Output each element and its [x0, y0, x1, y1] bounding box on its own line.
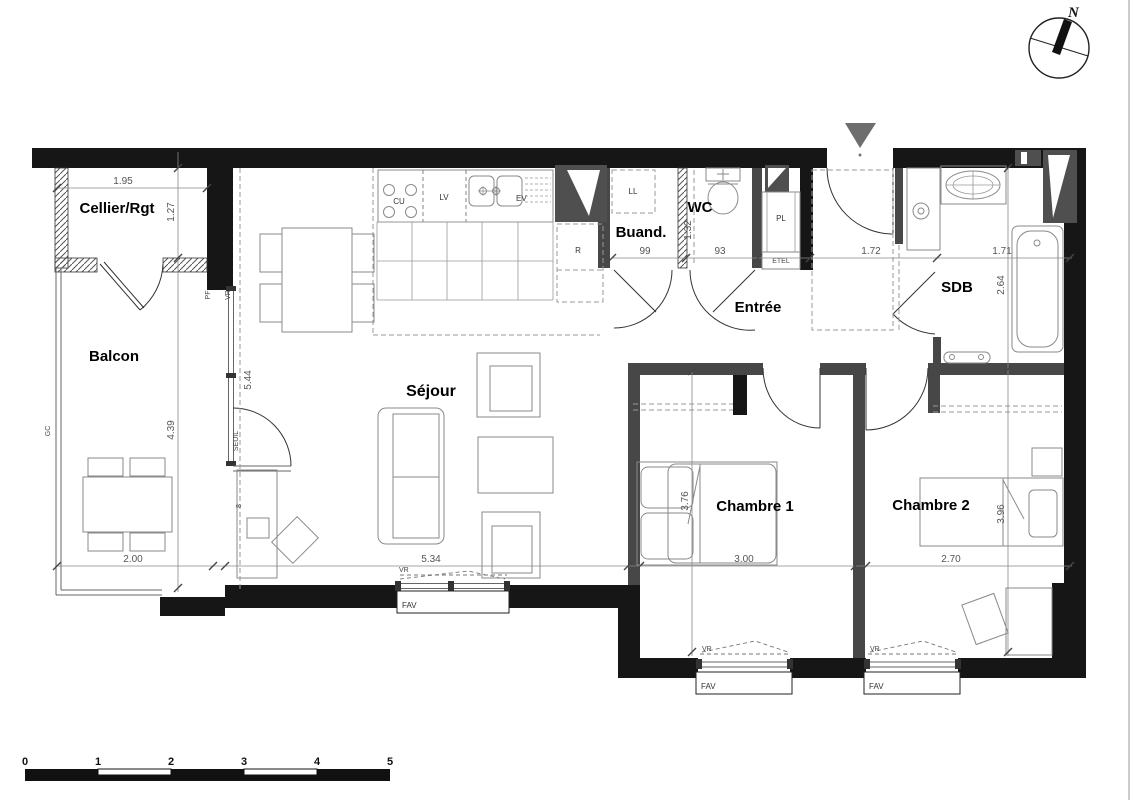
room-label-sdb: SDB [941, 279, 973, 296]
dim-chambre1-width: 3.00 [734, 554, 754, 565]
dim-entree-width: 1.72 [861, 246, 881, 257]
railing-label-gc: GC [45, 426, 52, 437]
balcony-railing [56, 268, 162, 595]
dim-sejour-width: 5.34 [421, 554, 441, 565]
fridge-label: R [575, 246, 581, 255]
washbasin-icon [941, 166, 1006, 204]
dim-cellier-width: 1.95 [113, 176, 133, 187]
bathtub-icon [1012, 226, 1063, 352]
sejour-window: FAV VR [395, 567, 510, 613]
room-label-buanderie: Buand. [616, 224, 667, 241]
sofa-icon [378, 408, 444, 544]
north-label: N [1067, 5, 1080, 21]
dim-wc-width: 93 [714, 246, 726, 257]
dim-balcon-height: 4.39 [166, 420, 177, 440]
chambre1-window: FAV VR [696, 641, 793, 694]
scale-tick: 1 [95, 756, 101, 768]
dim-cellier-height: 1.27 [166, 202, 177, 222]
patio-table-icon [83, 458, 172, 551]
exterior-walls [32, 148, 1086, 678]
window-label-fav: FAV [869, 682, 884, 691]
interior-walls [598, 168, 1064, 658]
scale-bar: 0 1 2 3 4 5 [22, 756, 393, 781]
shutter-label-vr: VR [399, 567, 409, 574]
dining-table-icon [260, 228, 374, 332]
nightstand-icon [1032, 448, 1062, 476]
north-compass: N [1029, 5, 1089, 78]
cooktop-label: CU [393, 197, 405, 206]
scale-tick: 4 [314, 756, 321, 768]
buanderie: LL Buand. [612, 170, 666, 241]
desk-icon [237, 470, 318, 578]
threshold-label: SEUIL [233, 431, 240, 451]
buanderie-door [614, 270, 672, 328]
desk-mark-label: 8 [236, 504, 243, 508]
scale-tick: 3 [241, 756, 247, 768]
dim-buanderie-width: 99 [639, 246, 651, 257]
dishwasher-label: LV [439, 193, 449, 202]
dim-sdb-height: 2.64 [996, 275, 1007, 295]
shutter-label-vr: VR [225, 290, 232, 300]
window-label-fav: FAV [701, 682, 716, 691]
joinery-annotations: PF VR SEUIL GC 8 [45, 290, 243, 508]
room-label-cellier: Cellier/Rgt [79, 200, 154, 217]
door-window-label-pf: PF [205, 291, 212, 300]
floor-plan-sheet: FAV VR FAV VR FAV VR [0, 0, 1133, 800]
dim-chambre1-height: 3.76 [680, 491, 691, 511]
coffee-table-icon [478, 437, 553, 493]
desk-icon [1006, 588, 1052, 655]
entree-closets: PL ETEL [762, 192, 800, 269]
sink-icon [469, 176, 522, 206]
shutter-label-vr: VR [702, 646, 712, 653]
dimensions: 1.95 1.27 4.39 5.44 2.00 5.34 3.00 2.70 … [53, 152, 1074, 656]
dim-wc-height: 1.32 [683, 220, 694, 240]
kitchen-tiles [377, 222, 553, 300]
entrance-door [827, 168, 893, 234]
balcon: Balcon Cellier/Rgt [79, 200, 172, 551]
dim-chambre2-height: 3.96 [996, 504, 1007, 524]
cellier-door [100, 262, 163, 310]
entrance-marker [845, 123, 876, 157]
etel-label: ETEL [772, 258, 790, 265]
shutter-label-vr: VR [870, 646, 880, 653]
desk-chair-icon [962, 593, 1008, 644]
room-label-chambre2: Chambre 2 [892, 497, 970, 514]
scale-tick: 5 [387, 756, 393, 768]
chambre1: Chambre 1 [633, 404, 794, 565]
dim-balcon-width: 2.00 [123, 554, 143, 565]
window-label-fav: FAV [402, 601, 417, 610]
room-label-chambre1: Chambre 1 [716, 498, 794, 515]
floor-plan: FAV VR FAV VR FAV VR [0, 0, 1133, 800]
washer-label: LL [629, 187, 638, 196]
bath-mat-icon [944, 352, 990, 363]
chambre1-door [763, 368, 820, 428]
sejour: Séjour [237, 228, 553, 578]
dim-sejour-height: 5.44 [243, 370, 254, 390]
chambre2: Chambre 2 [892, 406, 1063, 655]
chambre2-door [866, 368, 928, 430]
dim-chambre2-width: 2.70 [941, 554, 961, 565]
chambre2-window: FAV VR [864, 641, 961, 694]
room-label-entree: Entrée [735, 299, 782, 316]
armchair-icon [477, 353, 540, 417]
scale-tick: 0 [22, 756, 28, 768]
dim-sdb-width: 1.71 [992, 246, 1012, 257]
closet-label-pl: PL [776, 214, 786, 223]
armchair-icon [482, 512, 540, 578]
scale-tick: 2 [168, 756, 174, 768]
room-label-wc: WC [688, 199, 713, 216]
wc: WC [688, 168, 741, 216]
room-label-sejour: Séjour [406, 383, 456, 400]
room-label-balcon: Balcon [89, 348, 139, 365]
